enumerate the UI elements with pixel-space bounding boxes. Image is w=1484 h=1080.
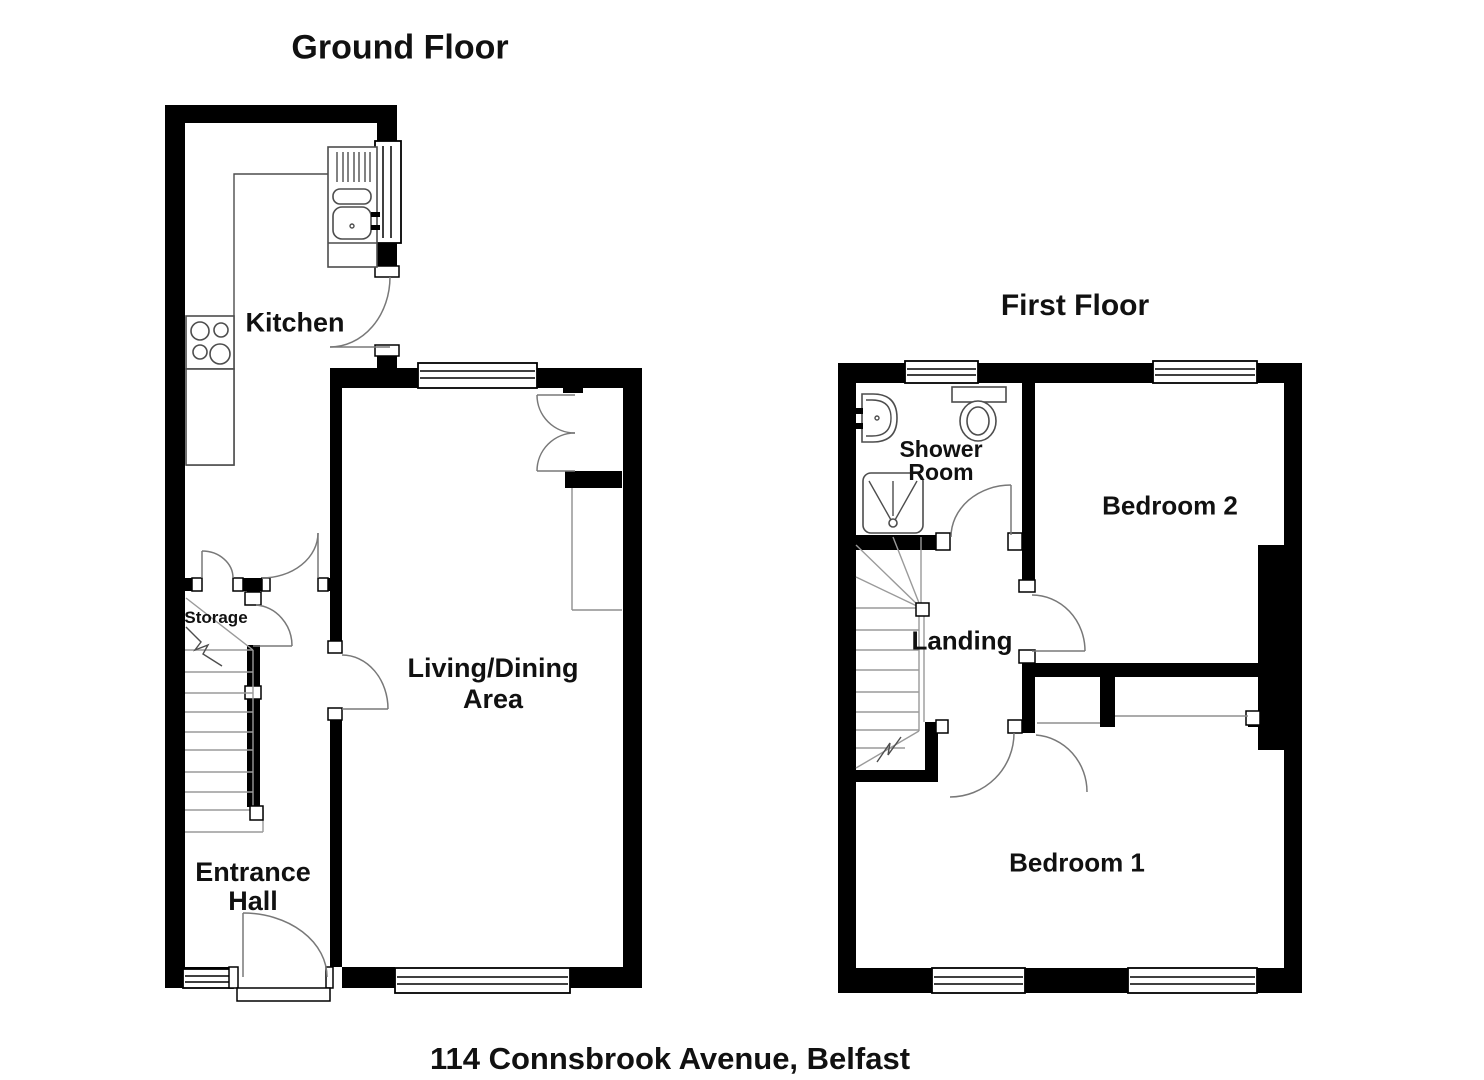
hall-window [183,969,233,988]
hall-kitchen-door [262,533,318,578]
bedroom1-window-left [932,968,1025,993]
stairs-up-arrow [877,737,901,762]
basin-icon [856,394,897,442]
alcove-double-doors [537,395,575,471]
stairs-up-arrow [186,627,222,666]
shower-room-door [951,485,1011,537]
living-dining-line2: Area [408,684,579,715]
living-top-window [418,363,537,388]
bedroom2-door [1032,595,1085,651]
living-room-door [342,655,388,709]
toilet-icon [952,387,1006,441]
bedroom1-window-right [1128,968,1257,993]
bedroom2-window [1153,361,1257,383]
entrance-hall-label: Entrance Hall [195,858,311,916]
shower-room-window [905,361,978,383]
hob-icon [186,316,234,369]
storage-top-door [202,551,233,578]
floorplan-drawing [0,0,1484,1080]
kitchen-fixtures [186,147,380,465]
front-door [243,913,327,977]
kitchen-unit [186,369,234,465]
entrance-line2: Hall [195,887,311,916]
living-dining-line1: Living/Dining [408,653,579,684]
stair-node [916,603,929,616]
living-bottom-window [395,968,570,993]
storage-label: Storage [184,608,247,628]
address-caption: 114 Connsbrook Avenue, Belfast [430,1041,910,1077]
bedroom1-closet [1037,716,1248,723]
bedroom2-label: Bedroom 2 [1102,491,1238,522]
shower-line2: Room [899,461,982,484]
shower-room-label: Shower Room [899,438,982,484]
bedroom1-door [950,733,1087,797]
landing-label: Landing [911,626,1012,657]
kitchen-label: Kitchen [245,308,344,339]
ground-floor-title: Ground Floor [291,29,508,68]
living-dining-label: Living/Dining Area [408,653,579,715]
floorplan-page: Ground Floor Kitchen Living/Dining Area … [0,0,1484,1080]
living-alcove [572,488,622,610]
kitchen-sink-icon [328,147,380,267]
shower-line1: Shower [899,438,982,461]
newel-post [250,806,263,820]
first-floor-title: First Floor [1001,289,1149,323]
storage-door [253,605,292,646]
ground-walls [165,105,642,988]
entrance-line1: Entrance [195,858,311,887]
bedroom1-label: Bedroom 1 [1009,848,1145,879]
